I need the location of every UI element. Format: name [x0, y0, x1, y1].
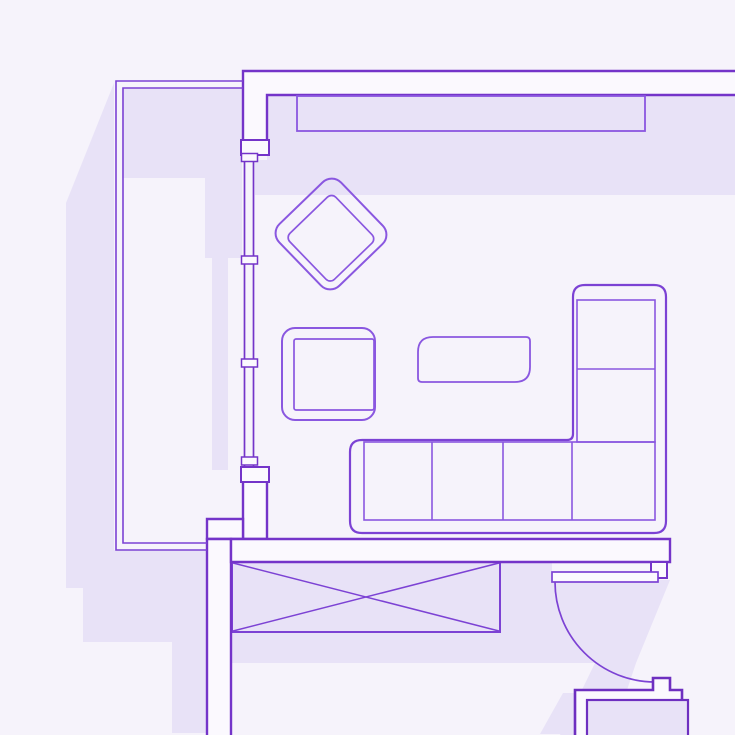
sofa-chaise-inner[interactable]	[577, 300, 655, 442]
sofa-seat-band[interactable]	[364, 442, 655, 520]
wall-jog	[207, 519, 243, 539]
wardrobe-crossed-box[interactable]	[232, 562, 500, 632]
wall-bottom	[231, 539, 670, 562]
floor-plan-svg	[0, 0, 735, 735]
door-leaf[interactable]	[552, 572, 658, 582]
wall-window-cap-bottom	[241, 467, 269, 482]
window-mullion-4[interactable]	[242, 457, 258, 465]
coffee-table[interactable]	[418, 337, 530, 382]
shadow-left-of-balcony	[66, 83, 207, 733]
appliance-inner-panel[interactable]	[587, 700, 688, 735]
shadow-balcony-interior	[122, 88, 242, 470]
wall-left-lower	[243, 474, 267, 539]
sectional-sofa[interactable]	[350, 285, 666, 533]
window-mullion-1[interactable]	[242, 154, 258, 162]
shadow-appliance	[540, 693, 575, 734]
square-armchair[interactable]	[282, 328, 375, 420]
square-armchair-seat[interactable]	[294, 339, 374, 410]
square-armchair-outer[interactable]	[282, 328, 375, 420]
window-mullion-3[interactable]	[242, 359, 258, 367]
diamond-armchair-seat[interactable]	[286, 193, 376, 283]
wall-corridor	[207, 539, 231, 735]
sofa-outer-outline[interactable]	[350, 285, 666, 533]
floor-plan-canvas	[0, 0, 735, 735]
window-strip[interactable]	[242, 154, 258, 468]
window-mullion-2[interactable]	[242, 256, 258, 264]
